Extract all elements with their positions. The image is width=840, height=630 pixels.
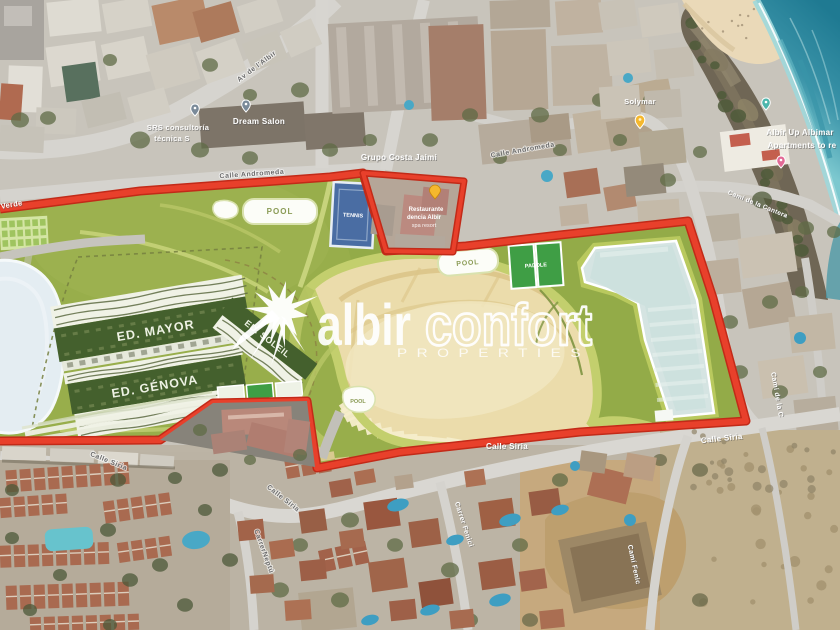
- svg-text:POOL: POOL: [350, 399, 366, 405]
- svg-text:Grupo Costa Jaimi: Grupo Costa Jaimi: [361, 153, 437, 162]
- svg-text:Calle Siria: Calle Siria: [486, 442, 528, 451]
- svg-text:Apartments to re: Apartments to re: [768, 141, 837, 150]
- svg-text:POOL: POOL: [267, 207, 294, 216]
- svg-text:PROPERTIES: PROPERTIES: [397, 346, 590, 360]
- svg-text:spa resort: spa resort: [412, 223, 437, 229]
- svg-text:Dream Salon: Dream Salon: [233, 117, 285, 126]
- svg-text:Albir Up Albimar: Albir Up Albimar: [766, 128, 834, 137]
- svg-text:SRS consultoría: SRS consultoría: [147, 123, 210, 132]
- svg-text:Restaurante: Restaurante: [409, 207, 444, 213]
- svg-text:Solymar: Solymar: [624, 97, 656, 106]
- svg-text:TENNIS: TENNIS: [343, 212, 364, 219]
- svg-text:dencia Albir: dencia Albir: [407, 215, 442, 221]
- svg-text:técnica S: técnica S: [154, 134, 190, 143]
